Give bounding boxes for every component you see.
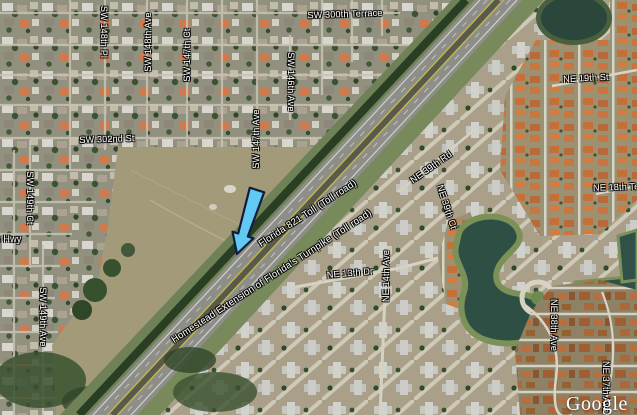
- street-label-ne-18th-ter: NE 18th Ter: [593, 181, 637, 193]
- street-label-sw-302nd-st: SW 302nd St: [79, 133, 135, 145]
- street-label-sw-147th-ave: SW 147th Ave: [251, 109, 261, 168]
- street-label-ne-14th-ave: NE 14th Ave: [381, 250, 391, 302]
- google-logo[interactable]: Google: [566, 393, 628, 415]
- street-label-sw-148th-pl: SW 148th Pl: [99, 6, 109, 58]
- street-label-sw-149th-ct: SW 149th Ct: [25, 171, 35, 224]
- street-label-sw-149th-ave: SW 149th Ave: [38, 287, 48, 346]
- street-label-sw-146th-ave: SW 146th Ave: [286, 52, 296, 111]
- street-label-sw-148th-ave: SW 148th Ave: [143, 12, 153, 71]
- street-label-ne-38th-ave: NE 38th Ave: [549, 299, 559, 351]
- street-label-s-hwy: s Hwy: [0, 234, 22, 244]
- street-label-sw-147th-ct: SW 147th Ct: [182, 28, 192, 81]
- satellite-map[interactable]: SW 300th Terrace SW 148th Pl SW 148th Av…: [0, 0, 637, 415]
